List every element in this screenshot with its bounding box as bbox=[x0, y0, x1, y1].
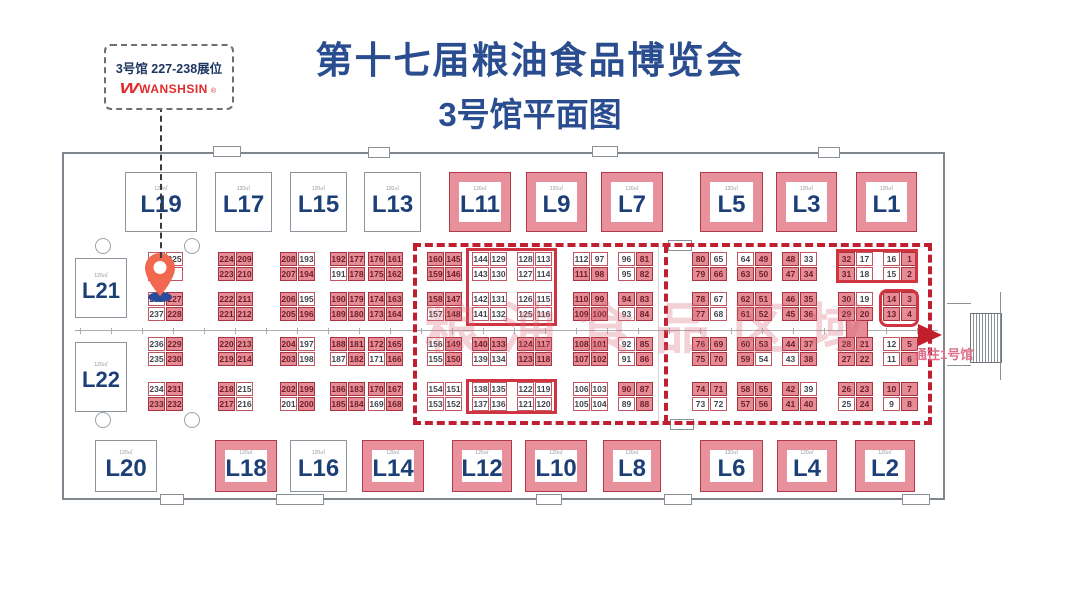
booth-label: L9 bbox=[542, 192, 570, 217]
booth-L20: 120㎡L20 bbox=[95, 440, 157, 492]
booth-L3: 120㎡L3 bbox=[776, 172, 837, 232]
booth-cell: 54 bbox=[755, 352, 772, 366]
door-mark bbox=[668, 240, 692, 251]
booth-cell: 45 bbox=[782, 307, 799, 321]
booth-L6: 120㎡L6 bbox=[700, 440, 763, 492]
booth-cell: 88 bbox=[636, 397, 653, 411]
merged-booth-outline bbox=[836, 249, 918, 283]
registered-mark: ® bbox=[211, 88, 216, 95]
booth-cell: 194 bbox=[298, 267, 315, 281]
booth-cell: 56 bbox=[755, 397, 772, 411]
dimension-tick bbox=[545, 328, 546, 334]
column-marker bbox=[184, 238, 200, 254]
booth-cell: 156 bbox=[427, 337, 444, 351]
dimension-tick bbox=[762, 328, 763, 334]
booth-cell: 213 bbox=[236, 337, 253, 351]
booth-cell: 21 bbox=[856, 337, 873, 351]
booth-cell: 182 bbox=[348, 352, 365, 366]
booth-cell: 66 bbox=[710, 267, 727, 281]
booth-cell: 153 bbox=[427, 397, 444, 411]
dimension-tick bbox=[576, 328, 577, 334]
booth-label: L8 bbox=[618, 456, 646, 481]
booth-cell: 167 bbox=[386, 382, 403, 396]
booth-L13: 120㎡L13 bbox=[364, 172, 421, 232]
booth-cell: 223 bbox=[218, 267, 235, 281]
booth-cell: 214 bbox=[236, 352, 253, 366]
expo-title: 第十七届粮油食品博览会 bbox=[250, 30, 810, 84]
booth-cell: 150 bbox=[445, 352, 462, 366]
booth-label: L6 bbox=[717, 456, 745, 481]
booth-cell: 207 bbox=[280, 267, 297, 281]
corridor-line bbox=[1000, 292, 1001, 380]
booth-cell: 222 bbox=[218, 292, 235, 306]
door-mark bbox=[818, 147, 840, 158]
booth-label: L21 bbox=[82, 279, 120, 302]
column-marker bbox=[95, 412, 111, 428]
door-mark bbox=[368, 147, 390, 158]
booth-label: L17 bbox=[223, 192, 264, 217]
corridor-to-hall1 bbox=[970, 313, 1002, 363]
booth-cell: 22 bbox=[856, 352, 873, 366]
booth-cell: 165 bbox=[386, 337, 403, 351]
booth-cell: 23 bbox=[856, 382, 873, 396]
booth-cell: 91 bbox=[618, 352, 635, 366]
booth-cell: 166 bbox=[386, 352, 403, 366]
booth-cell: 96 bbox=[618, 252, 635, 266]
booth-cell: 84 bbox=[636, 307, 653, 321]
booth-cell: 140 bbox=[472, 337, 489, 351]
booth-cell: 215 bbox=[236, 382, 253, 396]
highlight-dashed-divider bbox=[664, 245, 668, 423]
booth-cell: 28 bbox=[838, 337, 855, 351]
booth-cell: 191 bbox=[330, 267, 347, 281]
booth-cell: 155 bbox=[427, 352, 444, 366]
booth-cell: 97 bbox=[591, 252, 608, 266]
booth-cell: 52 bbox=[755, 307, 772, 321]
booth-cell: 224 bbox=[218, 252, 235, 266]
dimension-tick bbox=[514, 328, 515, 334]
booth-cell: 51 bbox=[755, 292, 772, 306]
booth-cell: 178 bbox=[348, 267, 365, 281]
dimension-tick bbox=[297, 328, 298, 334]
booth-label: L1 bbox=[872, 192, 900, 217]
booth-cell: 160 bbox=[427, 252, 444, 266]
booth-cell: 200 bbox=[298, 397, 315, 411]
booth-L8: 120㎡L8 bbox=[603, 440, 661, 492]
page-title: 第十七届粮油食品博览会 3号馆平面图 bbox=[250, 30, 810, 136]
exhibitor-callout: 3号馆 227-238展位 W WANSHSIN ® bbox=[104, 44, 234, 110]
booth-cell: 123 bbox=[517, 352, 534, 366]
booth-cell: 157 bbox=[427, 307, 444, 321]
booth-label: L20 bbox=[105, 456, 146, 481]
dimension-tick bbox=[173, 328, 174, 334]
booth-cell: 164 bbox=[386, 307, 403, 321]
dimension-tick bbox=[142, 328, 143, 334]
dimension-tick bbox=[111, 328, 112, 334]
booth-cell: 234 bbox=[148, 382, 165, 396]
booth-cell: 46 bbox=[782, 292, 799, 306]
booth-cell: 235 bbox=[148, 352, 165, 366]
booth-cell: 162 bbox=[386, 267, 403, 281]
booth-cell: 65 bbox=[710, 252, 727, 266]
booth-cell: 229 bbox=[166, 337, 183, 351]
dimension-tick bbox=[824, 328, 825, 334]
booth-cell: 158 bbox=[427, 292, 444, 306]
dimension-tick bbox=[452, 328, 453, 334]
booth-cell: 180 bbox=[348, 307, 365, 321]
booth-cell: 73 bbox=[692, 397, 709, 411]
booth-cell: 170 bbox=[368, 382, 385, 396]
booth-cell: 79 bbox=[692, 267, 709, 281]
door-mark bbox=[664, 494, 692, 505]
booth-cell: 216 bbox=[236, 397, 253, 411]
booth-cell: 205 bbox=[280, 307, 297, 321]
booth-cell: 68 bbox=[710, 307, 727, 321]
booth-cell: 112 bbox=[573, 252, 590, 266]
corridor-line bbox=[947, 365, 971, 366]
booth-cell: 38 bbox=[800, 352, 817, 366]
booth-cell: 57 bbox=[737, 397, 754, 411]
booth-cell: 39 bbox=[800, 382, 817, 396]
column-marker bbox=[95, 238, 111, 254]
merged-booth-outline bbox=[466, 248, 557, 326]
callout-leader-line bbox=[160, 106, 162, 258]
booth-cell: 231 bbox=[166, 382, 183, 396]
booth-cell: 90 bbox=[618, 382, 635, 396]
booth-cell: 169 bbox=[368, 397, 385, 411]
exit-arrow-icon bbox=[918, 324, 942, 346]
dimension-tick bbox=[390, 328, 391, 334]
booth-cell: 36 bbox=[800, 307, 817, 321]
booth-cell: 173 bbox=[368, 307, 385, 321]
column-marker bbox=[184, 412, 200, 428]
booth-cell: 206 bbox=[280, 292, 297, 306]
booth-cell: 30 bbox=[838, 292, 855, 306]
dimension-tick bbox=[421, 328, 422, 334]
booth-cell: 7 bbox=[901, 382, 918, 396]
booth-cell: 148 bbox=[445, 307, 462, 321]
booth-cell: 218 bbox=[218, 382, 235, 396]
dimension-tick bbox=[700, 328, 701, 334]
booth-L21: 120㎡L21 bbox=[75, 258, 127, 318]
booth-cell: 81 bbox=[636, 252, 653, 266]
grid-line bbox=[658, 246, 659, 424]
booth-cell: 43 bbox=[782, 352, 799, 366]
booth-cell: 190 bbox=[330, 292, 347, 306]
door-mark bbox=[276, 494, 324, 505]
booth-cell: 221 bbox=[218, 307, 235, 321]
booth-cell: 77 bbox=[692, 307, 709, 321]
booth-cell: 58 bbox=[737, 382, 754, 396]
booth-cell: 47 bbox=[782, 267, 799, 281]
booth-cell: 199 bbox=[298, 382, 315, 396]
dimension-tick bbox=[886, 328, 887, 334]
booth-label: L15 bbox=[298, 192, 339, 217]
booth-L11: 120㎡L11 bbox=[449, 172, 511, 232]
booth-cell: 146 bbox=[445, 267, 462, 281]
booth-cell: 202 bbox=[280, 382, 297, 396]
dimension-tick bbox=[235, 328, 236, 334]
booth-cell: 111 bbox=[573, 267, 590, 281]
door-mark bbox=[213, 146, 241, 157]
booth-cell: 87 bbox=[636, 382, 653, 396]
booth-cell: 134 bbox=[490, 352, 507, 366]
booth-cell: 61 bbox=[737, 307, 754, 321]
booth-cell: 104 bbox=[591, 397, 608, 411]
booth-cell: 19 bbox=[856, 292, 873, 306]
booth-cell: 42 bbox=[782, 382, 799, 396]
booth-cell: 60 bbox=[737, 337, 754, 351]
booth-cell: 78 bbox=[692, 292, 709, 306]
booth-cell: 159 bbox=[427, 267, 444, 281]
booth-cell: 69 bbox=[710, 337, 727, 351]
booth-label: L10 bbox=[535, 456, 576, 481]
booth-cell: 95 bbox=[618, 267, 635, 281]
booth-label: L13 bbox=[372, 192, 413, 217]
booth-cell: 188 bbox=[330, 337, 347, 351]
booth-cell: 145 bbox=[445, 252, 462, 266]
booth-cell: 85 bbox=[636, 337, 653, 351]
booth-cell: 83 bbox=[636, 292, 653, 306]
callout-booth-range: 3号馆 227-238展位 bbox=[116, 58, 222, 77]
booth-L4: 120㎡L4 bbox=[777, 440, 837, 492]
booth-cell: 89 bbox=[618, 397, 635, 411]
booth-cell: 133 bbox=[490, 337, 507, 351]
booth-cell: 33 bbox=[800, 252, 817, 266]
booth-cell: 236 bbox=[148, 337, 165, 351]
booth-label: L4 bbox=[793, 456, 821, 481]
booth-label: L12 bbox=[461, 456, 502, 481]
booth-cell: 93 bbox=[618, 307, 635, 321]
booth-cell: 237 bbox=[148, 307, 165, 321]
dimension-tick bbox=[731, 328, 732, 334]
booth-L1: 120㎡L1 bbox=[856, 172, 917, 232]
booth-cell: 185 bbox=[330, 397, 347, 411]
dimension-tick bbox=[607, 328, 608, 334]
booth-L17: 120㎡L17 bbox=[215, 172, 272, 232]
booth-cell: 220 bbox=[218, 337, 235, 351]
booth-L14: 120㎡L14 bbox=[362, 440, 424, 492]
booth-cell: 196 bbox=[298, 307, 315, 321]
booth-cell: 175 bbox=[368, 267, 385, 281]
booth-cell: 103 bbox=[591, 382, 608, 396]
corridor-line bbox=[947, 303, 971, 304]
dimension-tick bbox=[204, 328, 205, 334]
booth-cell: 139 bbox=[472, 352, 489, 366]
booth-cell: 187 bbox=[330, 352, 347, 366]
booth-cell: 228 bbox=[166, 307, 183, 321]
booth-cell: 106 bbox=[573, 382, 590, 396]
booth-cell: 147 bbox=[445, 292, 462, 306]
location-pin-icon bbox=[142, 252, 178, 303]
merged-booth-outline bbox=[879, 289, 919, 327]
hall-subtitle: 3号馆平面图 bbox=[250, 88, 810, 136]
booth-cell: 172 bbox=[368, 337, 385, 351]
booth-cell: 67 bbox=[710, 292, 727, 306]
booth-cell: 151 bbox=[445, 382, 462, 396]
booth-cell: 217 bbox=[218, 397, 235, 411]
booth-cell: 94 bbox=[618, 292, 635, 306]
dimension-tick bbox=[669, 328, 670, 334]
booth-L15: 120㎡L15 bbox=[290, 172, 347, 232]
merged-booth-outline bbox=[466, 379, 557, 414]
booth-cell: 179 bbox=[348, 292, 365, 306]
booth-cell: 107 bbox=[573, 352, 590, 366]
booth-cell: 184 bbox=[348, 397, 365, 411]
dimension-tick bbox=[638, 328, 639, 334]
door-mark bbox=[536, 494, 562, 505]
booth-cell: 76 bbox=[692, 337, 709, 351]
booth-cell: 198 bbox=[298, 352, 315, 366]
booth-cell: 37 bbox=[800, 337, 817, 351]
door-mark bbox=[592, 146, 618, 157]
booth-cell: 99 bbox=[591, 292, 608, 306]
booth-cell: 27 bbox=[838, 352, 855, 366]
booth-cell: 59 bbox=[737, 352, 754, 366]
booth-cell: 193 bbox=[298, 252, 315, 266]
booth-cell: 161 bbox=[386, 252, 403, 266]
booth-cell: 63 bbox=[737, 267, 754, 281]
wanshsin-logo-icon: W bbox=[120, 80, 139, 97]
booth-L16: 120㎡L16 bbox=[290, 440, 347, 492]
booth-cell: 204 bbox=[280, 337, 297, 351]
booth-cell: 171 bbox=[368, 352, 385, 366]
booth-label: L22 bbox=[82, 368, 120, 391]
booth-cell: 233 bbox=[148, 397, 165, 411]
booth-cell: 25 bbox=[838, 397, 855, 411]
dimension-tick bbox=[359, 328, 360, 334]
booth-cell: 20 bbox=[856, 307, 873, 321]
booth-cell: 80 bbox=[692, 252, 709, 266]
booth-label: L3 bbox=[792, 192, 820, 217]
booth-cell: 109 bbox=[573, 307, 590, 321]
booth-cell: 189 bbox=[330, 307, 347, 321]
dimension-tick bbox=[80, 328, 81, 334]
booth-cell: 92 bbox=[618, 337, 635, 351]
booth-label: L18 bbox=[225, 456, 266, 481]
booth-cell: 98 bbox=[591, 267, 608, 281]
booth-cell: 44 bbox=[782, 337, 799, 351]
booth-label: L2 bbox=[871, 456, 899, 481]
booth-cell: 105 bbox=[573, 397, 590, 411]
exit-label: 通往1号馆 bbox=[914, 344, 973, 363]
booth-cell: 168 bbox=[386, 397, 403, 411]
booth-label: L5 bbox=[717, 192, 745, 217]
booth-cell: 53 bbox=[755, 337, 772, 351]
booth-cell: 64 bbox=[737, 252, 754, 266]
booth-cell: 195 bbox=[298, 292, 315, 306]
booth-cell: 11 bbox=[883, 352, 900, 366]
booth-cell: 181 bbox=[348, 337, 365, 351]
booth-cell: 10 bbox=[883, 382, 900, 396]
booth-label: L7 bbox=[618, 192, 646, 217]
booth-cell: 82 bbox=[636, 267, 653, 281]
floor-plan-page: 第十七届粮油食品博览会 3号馆平面图 3号馆 227-238展位 W WANSH… bbox=[0, 0, 1080, 603]
dimension-tick bbox=[793, 328, 794, 334]
booth-cell: 210 bbox=[236, 267, 253, 281]
booth-cell: 41 bbox=[782, 397, 799, 411]
booth-cell: 110 bbox=[573, 292, 590, 306]
booth-cell: 9 bbox=[883, 397, 900, 411]
booth-cell: 55 bbox=[755, 382, 772, 396]
booth-L22: 120㎡L22 bbox=[75, 342, 127, 412]
booth-L9: 120㎡L9 bbox=[526, 172, 587, 232]
booth-cell: 40 bbox=[800, 397, 817, 411]
booth-cell: 230 bbox=[166, 352, 183, 366]
booth-cell: 232 bbox=[166, 397, 183, 411]
merged-booth-fill bbox=[846, 321, 868, 337]
booth-cell: 163 bbox=[386, 292, 403, 306]
booth-L18: 120㎡L18 bbox=[215, 440, 277, 492]
booth-cell: 177 bbox=[348, 252, 365, 266]
booth-cell: 154 bbox=[427, 382, 444, 396]
door-mark bbox=[902, 494, 930, 505]
dimension-tick bbox=[328, 328, 329, 334]
dimension-line bbox=[75, 330, 938, 331]
booth-cell: 100 bbox=[591, 307, 608, 321]
booth-cell: 35 bbox=[800, 292, 817, 306]
booth-cell: 102 bbox=[591, 352, 608, 366]
booth-cell: 124 bbox=[517, 337, 534, 351]
booth-cell: 26 bbox=[838, 382, 855, 396]
booth-L2: 120㎡L2 bbox=[855, 440, 915, 492]
booth-cell: 183 bbox=[348, 382, 365, 396]
booth-cell: 86 bbox=[636, 352, 653, 366]
booth-cell: 50 bbox=[755, 267, 772, 281]
booth-cell: 197 bbox=[298, 337, 315, 351]
booth-cell: 192 bbox=[330, 252, 347, 266]
booth-L12: 120㎡L12 bbox=[452, 440, 512, 492]
booth-label: L11 bbox=[460, 192, 500, 217]
booth-cell: 174 bbox=[368, 292, 385, 306]
brand-name: WANSHSIN bbox=[139, 82, 208, 96]
dimension-tick bbox=[483, 328, 484, 334]
booth-L7: 120㎡L7 bbox=[601, 172, 663, 232]
booth-cell: 12 bbox=[883, 337, 900, 351]
booth-cell: 62 bbox=[737, 292, 754, 306]
booth-cell: 108 bbox=[573, 337, 590, 351]
booth-cell: 74 bbox=[692, 382, 709, 396]
booth-cell: 212 bbox=[236, 307, 253, 321]
booth-cell: 149 bbox=[445, 337, 462, 351]
booth-cell: 201 bbox=[280, 397, 297, 411]
door-mark bbox=[160, 494, 184, 505]
booth-cell: 70 bbox=[710, 352, 727, 366]
booth-cell: 48 bbox=[782, 252, 799, 266]
booth-cell: 186 bbox=[330, 382, 347, 396]
booth-cell: 209 bbox=[236, 252, 253, 266]
dimension-tick bbox=[266, 328, 267, 334]
booth-L5: 120㎡L5 bbox=[700, 172, 763, 232]
booth-cell: 101 bbox=[591, 337, 608, 351]
booth-cell: 152 bbox=[445, 397, 462, 411]
booth-cell: 8 bbox=[901, 397, 918, 411]
booth-label: L16 bbox=[298, 456, 339, 481]
booth-cell: 211 bbox=[236, 292, 253, 306]
brand-row: W WANSHSIN ® bbox=[122, 80, 216, 97]
booth-cell: 176 bbox=[368, 252, 385, 266]
booth-cell: 203 bbox=[280, 352, 297, 366]
booth-cell: 118 bbox=[535, 352, 552, 366]
booth-cell: 34 bbox=[800, 267, 817, 281]
booth-cell: 219 bbox=[218, 352, 235, 366]
door-mark bbox=[670, 419, 694, 430]
booth-cell: 29 bbox=[838, 307, 855, 321]
booth-cell: 72 bbox=[710, 397, 727, 411]
booth-L10: 120㎡L10 bbox=[525, 440, 587, 492]
booth-cell: 117 bbox=[535, 337, 552, 351]
booth-label: L14 bbox=[372, 456, 413, 481]
